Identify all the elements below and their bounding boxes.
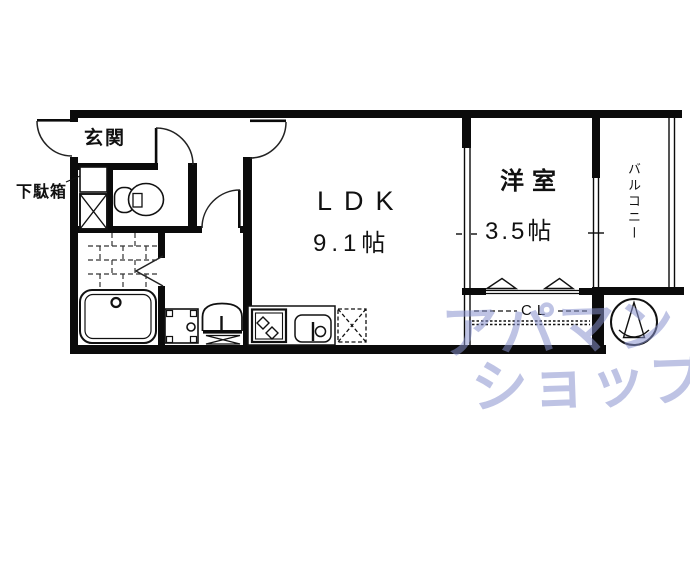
ldk-label: LDK: [317, 186, 406, 217]
closet-label: CL: [521, 302, 550, 319]
pipe-shaft-box: [80, 194, 107, 229]
sliding-door-ldk-westroom: [456, 148, 477, 345]
window-westroom-balcony: [588, 178, 604, 287]
toilet-fixture: [115, 184, 164, 216]
closet-bifold-track: [486, 291, 579, 294]
washing-machine-pan: [165, 309, 198, 343]
vanity-sink: [203, 304, 243, 345]
kitchen-counter: [248, 306, 335, 345]
western-room-label: 洋室: [500, 161, 564, 196]
bath-tile-floor: [88, 233, 157, 287]
balcony-railing: [669, 118, 675, 287]
washroom-door: [202, 190, 241, 228]
bathtub: [80, 290, 156, 343]
closet-bifold-doors: [487, 279, 573, 289]
refrigerator-space: [338, 309, 366, 342]
entrance-door: [37, 119, 72, 156]
north-compass-icon: [611, 299, 657, 345]
shoe-cabinet-label: 下駄箱: [16, 178, 67, 202]
floorplan-drawing: [0, 0, 690, 575]
floorplan-canvas: 玄関 下駄箱 LDK 9.1帖 洋室 3.5帖 バルコニー CL アパマン ショ…: [0, 0, 690, 575]
balcony-label: バルコニー: [624, 162, 643, 242]
ldk-area-label: 9.1帖: [313, 223, 390, 258]
toilet-door: [155, 128, 193, 165]
western-room-area-label: 3.5帖: [485, 211, 554, 246]
genkan-label: 玄関: [84, 123, 126, 150]
hall-to-ldk-door: [250, 120, 286, 159]
